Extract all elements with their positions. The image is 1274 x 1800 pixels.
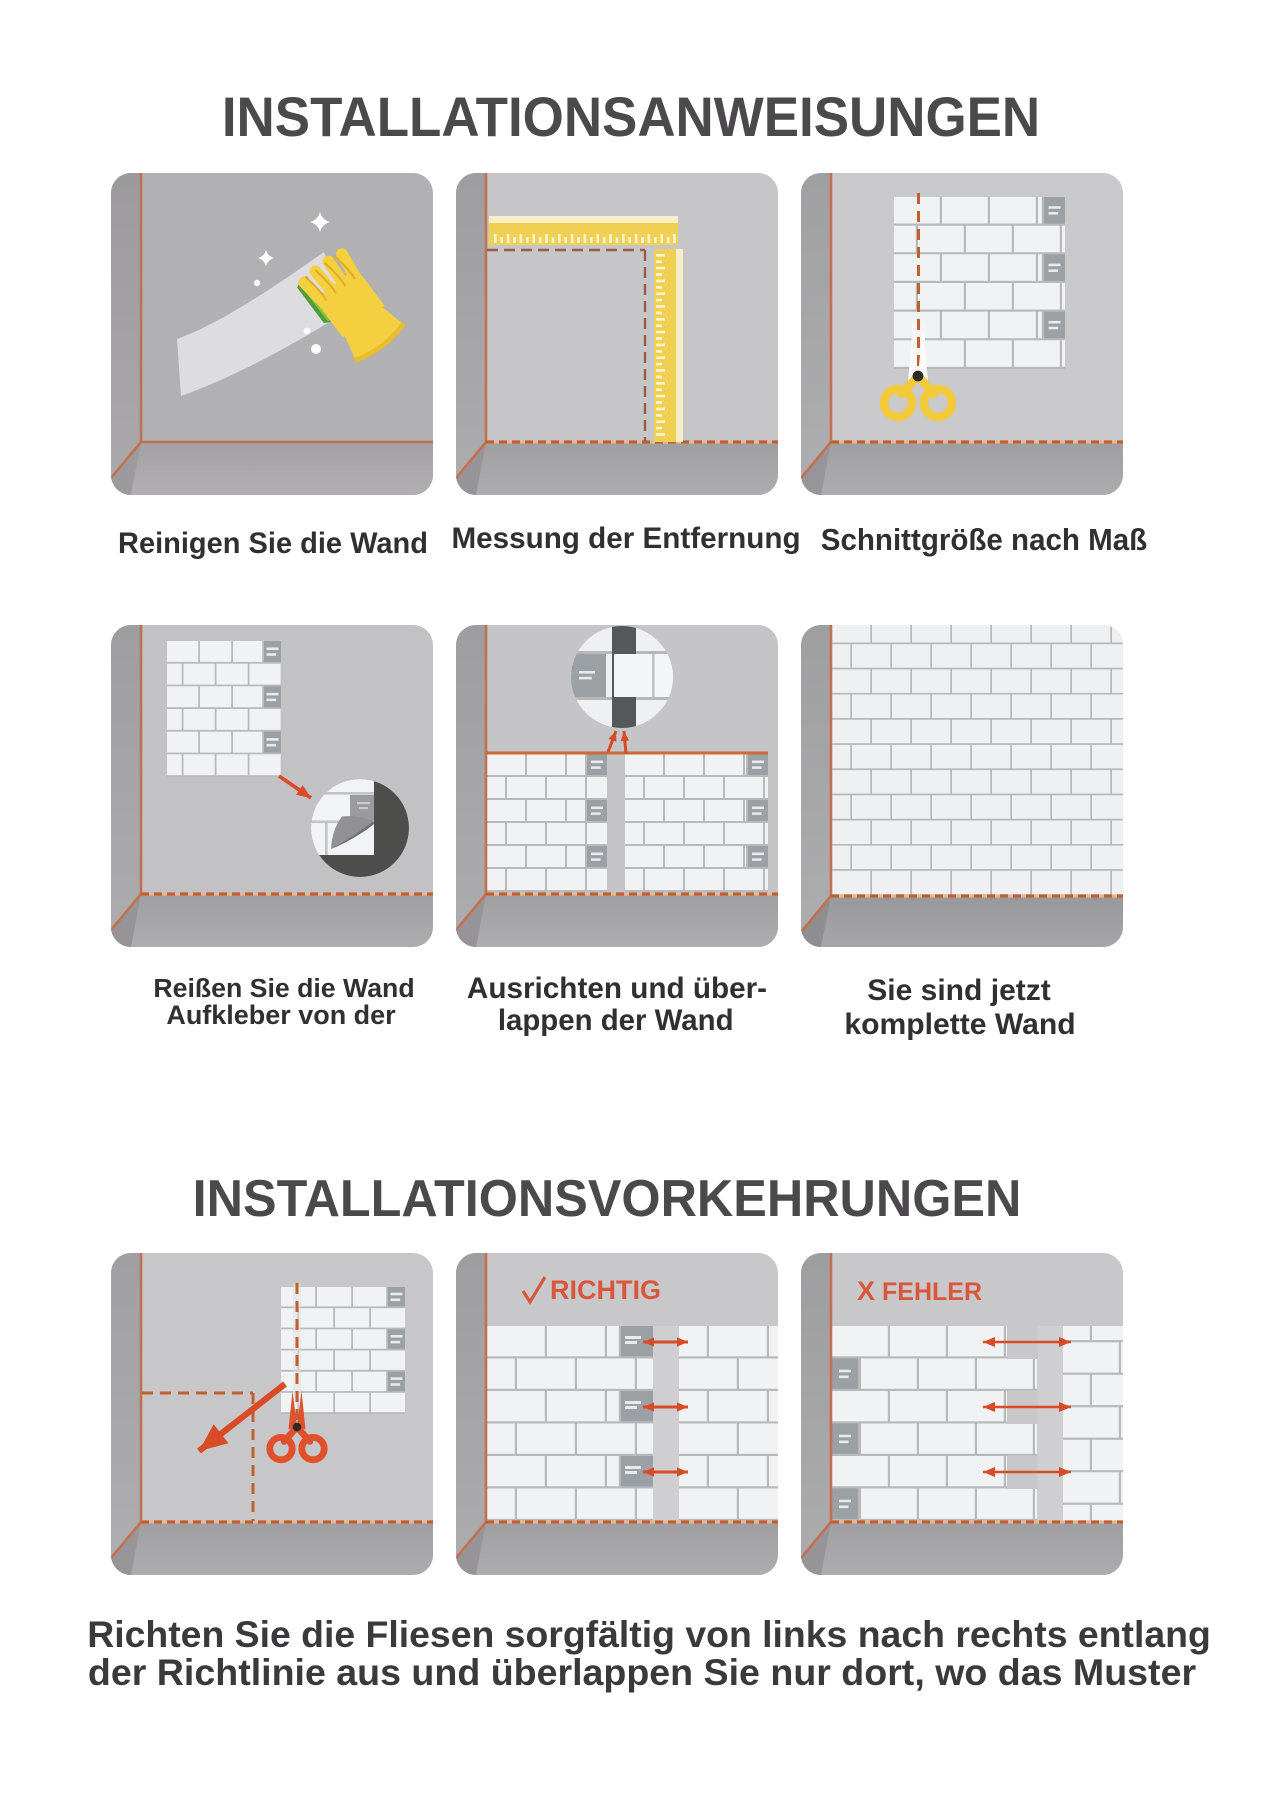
svg-text:X: X	[857, 1276, 875, 1306]
svg-text:FEHLER: FEHLER	[882, 1278, 982, 1306]
svg-text:RICHTIG: RICHTIG	[550, 1275, 661, 1305]
